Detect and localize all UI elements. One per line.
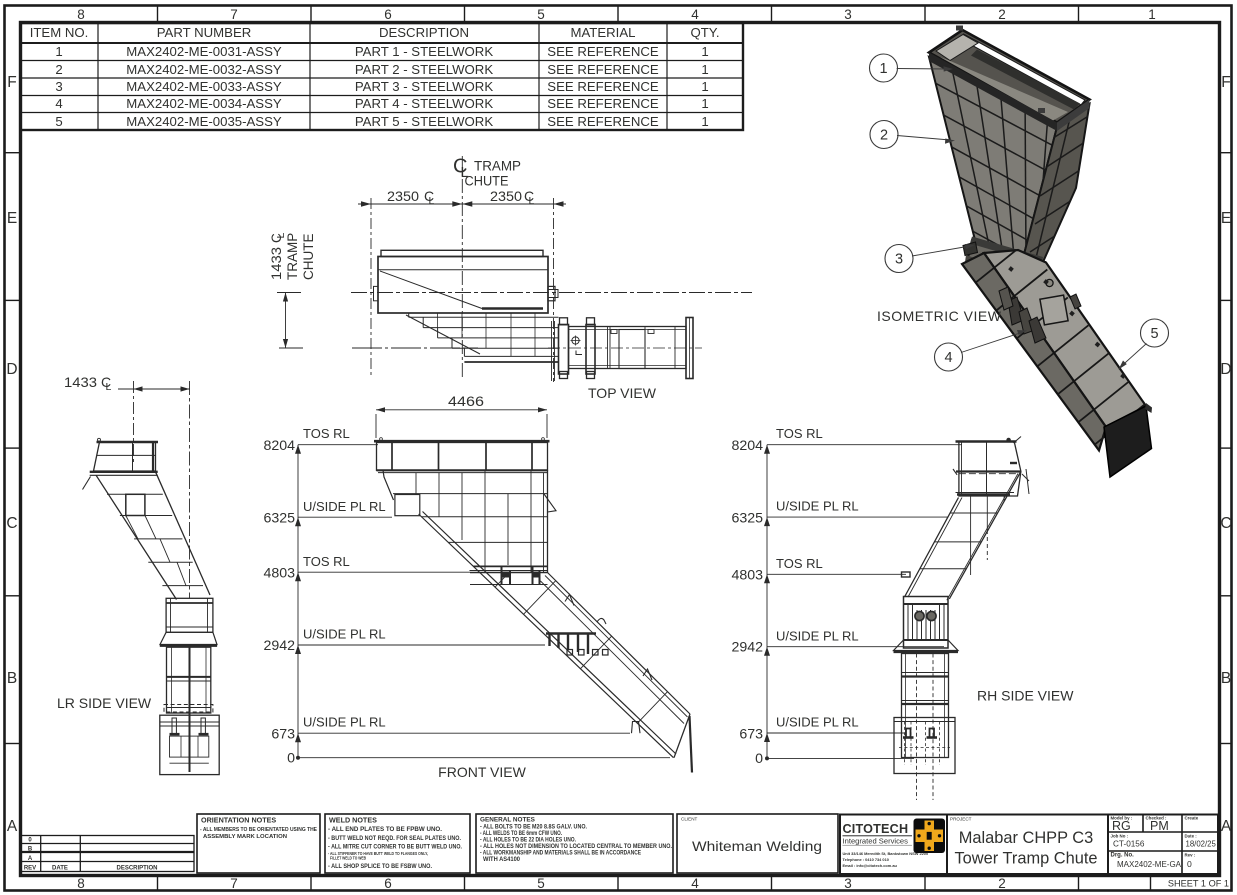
svg-text:TOS RL: TOS RL — [776, 426, 823, 441]
svg-text:1: 1 — [701, 79, 708, 94]
svg-text:MAX2402-ME-0032-ASSY: MAX2402-ME-0032-ASSY — [126, 62, 282, 77]
svg-text:2: 2 — [55, 62, 62, 77]
svg-text:SEE REFERENCE: SEE REFERENCE — [547, 44, 659, 59]
svg-text:1433: 1433 — [269, 247, 284, 280]
svg-text:0: 0 — [755, 751, 763, 767]
svg-text:TOS RL: TOS RL — [303, 426, 350, 441]
svg-text:U/SIDE PL RL: U/SIDE PL RL — [303, 715, 386, 730]
svg-text:B: B — [1221, 670, 1231, 687]
svg-text:6325: 6325 — [731, 511, 763, 527]
svg-text:0: 0 — [287, 751, 295, 767]
svg-text:Email : info@citotech.com.au: Email : info@citotech.com.au — [843, 863, 898, 868]
svg-text:Telephone : 0410 734 010: Telephone : 0410 734 010 — [843, 857, 889, 862]
svg-text:WITH AS4100: WITH AS4100 — [483, 857, 521, 863]
svg-text:3: 3 — [895, 252, 903, 268]
svg-text:7: 7 — [230, 7, 238, 22]
svg-text:MAX2402-ME-0033-ASSY: MAX2402-ME-0033-ASSY — [126, 79, 282, 94]
svg-text:L: L — [106, 381, 112, 393]
svg-text:RG: RG — [1112, 819, 1131, 833]
svg-text:- ALL WELDS TO BE 6mm CFW UNO.: - ALL WELDS TO BE 6mm CFW UNO. — [480, 831, 562, 837]
svg-text:TOS RL: TOS RL — [303, 554, 350, 569]
svg-text:U/SIDE PL RL: U/SIDE PL RL — [303, 627, 386, 642]
svg-text:C: C — [1220, 515, 1231, 532]
svg-text:5: 5 — [55, 114, 62, 129]
svg-text:SEE REFERENCE: SEE REFERENCE — [547, 114, 659, 129]
svg-text:1: 1 — [55, 44, 62, 59]
svg-text:- ALL BOLTS TO BE M20 8.8S GAL: - ALL BOLTS TO BE M20 8.8S GALV. UNO. — [480, 825, 587, 831]
svg-text:1: 1 — [1148, 7, 1156, 22]
svg-text:SEE REFERENCE: SEE REFERENCE — [547, 96, 659, 111]
svg-text:SEE REFERENCE: SEE REFERENCE — [547, 79, 659, 94]
svg-text:2: 2 — [998, 7, 1006, 22]
svg-text:PART NUMBER: PART NUMBER — [157, 25, 252, 40]
svg-text:Job No :: Job No : — [1111, 834, 1129, 839]
svg-text:- ALL WORKMANSHIP AND MATERIAL: - ALL WORKMANSHIP AND MATERIALS SHALL BE… — [480, 851, 641, 857]
svg-text:2350: 2350 — [387, 188, 419, 204]
svg-text:PART 3 - STEELWORK: PART 3 - STEELWORK — [355, 79, 493, 94]
svg-text:B: B — [7, 670, 17, 687]
svg-text:C: C — [6, 515, 17, 532]
svg-text:D: D — [6, 361, 17, 378]
svg-text:CHUTE: CHUTE — [465, 174, 509, 189]
svg-text:ITEM NO.: ITEM NO. — [30, 25, 89, 40]
svg-text:GENERAL NOTES: GENERAL NOTES — [480, 817, 536, 824]
svg-text:2: 2 — [998, 876, 1006, 891]
svg-text:8204: 8204 — [263, 438, 295, 454]
svg-text:1: 1 — [701, 114, 708, 129]
svg-text:2942: 2942 — [731, 640, 763, 656]
svg-text:8204: 8204 — [731, 438, 763, 454]
svg-text:18/02/25: 18/02/25 — [1186, 840, 1217, 849]
svg-text:- ALL MITRE CUT CORNER TO BE: - ALL MITRE CUT CORNER TO BE BUTT WELD U… — [328, 845, 462, 851]
svg-text:Malabar CHPP C3: Malabar CHPP C3 — [959, 829, 1094, 847]
svg-text:PART 2 - STEELWORK: PART 2 - STEELWORK — [355, 62, 493, 77]
svg-text:- ALL END PLATES TO BE FPBW UN: - ALL END PLATES TO BE FPBW UNO. — [328, 826, 442, 833]
svg-text:Integrated Services: Integrated Services — [843, 837, 909, 846]
svg-text:CT-0156: CT-0156 — [1113, 840, 1145, 849]
svg-text:8: 8 — [77, 876, 85, 891]
svg-text:D: D — [1220, 361, 1231, 378]
svg-text:WELD NOTES: WELD NOTES — [329, 816, 377, 825]
svg-text:TOS RL: TOS RL — [776, 556, 823, 571]
svg-text:PART 5 - STEELWORK: PART 5 - STEELWORK — [355, 114, 493, 129]
svg-text:2: 2 — [880, 128, 888, 144]
svg-text:PART 4 - STEELWORK: PART 4 - STEELWORK — [355, 96, 493, 111]
svg-text:ASSEMBLY MARK LOCATION: ASSEMBLY MARK LOCATION — [203, 834, 287, 840]
svg-text:1: 1 — [701, 44, 708, 59]
svg-text:1: 1 — [701, 96, 708, 111]
svg-text:3: 3 — [844, 7, 852, 22]
svg-text:MAX2402-ME-0035-ASSY: MAX2402-ME-0035-ASSY — [126, 114, 282, 129]
svg-text:DESCRIPTION: DESCRIPTION — [379, 25, 469, 40]
svg-text:3: 3 — [55, 79, 62, 94]
svg-text:L: L — [429, 195, 435, 207]
svg-text:CITOTECH: CITOTECH — [843, 822, 909, 836]
svg-text:U/SIDE PL RL: U/SIDE PL RL — [776, 499, 859, 514]
svg-text:Drg. No.: Drg. No. — [1111, 853, 1135, 859]
svg-text:CHUTE: CHUTE — [301, 234, 316, 281]
svg-text:5: 5 — [537, 7, 545, 22]
svg-text:CLIENT: CLIENT — [681, 817, 698, 822]
svg-text:L: L — [529, 195, 535, 207]
svg-text:673: 673 — [739, 727, 763, 743]
svg-text:- ALL HOLES TO BE 22 DIA HOLES: - ALL HOLES TO BE 22 DIA HOLES UNO. — [480, 838, 576, 844]
svg-text:1: 1 — [879, 61, 887, 77]
svg-text:3: 3 — [844, 876, 852, 891]
svg-text:U/SIDE PL RL: U/SIDE PL RL — [776, 629, 859, 644]
svg-text:7: 7 — [230, 876, 238, 891]
svg-text:- BUTT WELD NOT REQD. FOR SEAL: - BUTT WELD NOT REQD. FOR SEAL PLATES UN… — [328, 836, 461, 842]
svg-text:673: 673 — [271, 727, 295, 743]
svg-text:5: 5 — [1150, 326, 1158, 342]
svg-text:QTY.: QTY. — [690, 25, 719, 40]
svg-text:Tower Tramp Chute: Tower Tramp Chute — [954, 850, 1097, 868]
svg-text:RH SIDE VIEW: RH SIDE VIEW — [977, 688, 1074, 704]
svg-text:1: 1 — [701, 62, 708, 77]
svg-text:4466: 4466 — [448, 393, 484, 409]
svg-text:6: 6 — [384, 876, 392, 891]
svg-text:ISOMETRIC VIEW: ISOMETRIC VIEW — [877, 308, 1002, 324]
svg-text:MATERIAL: MATERIAL — [571, 25, 636, 40]
svg-text:E: E — [7, 210, 17, 227]
svg-text:2942: 2942 — [263, 638, 295, 654]
svg-text:8: 8 — [77, 7, 85, 22]
svg-text:4: 4 — [944, 350, 952, 366]
svg-text:4: 4 — [55, 96, 62, 111]
svg-text:2350: 2350 — [490, 188, 522, 204]
svg-text:U/SIDE PL RL: U/SIDE PL RL — [303, 499, 386, 514]
svg-text:F: F — [1221, 74, 1230, 91]
svg-text:- ALL MEMBERS TO BE ORIENTATED: - ALL MEMBERS TO BE ORIENTATED USING THE — [200, 827, 317, 833]
svg-text:TRAMP: TRAMP — [285, 233, 300, 280]
svg-text:5: 5 — [537, 876, 545, 891]
svg-text:TOP VIEW: TOP VIEW — [588, 385, 657, 401]
svg-text:4: 4 — [691, 7, 699, 22]
svg-text:FILLET WELD TO WEB: FILLET WELD TO WEB — [330, 856, 366, 861]
svg-text:FRONT VIEW: FRONT VIEW — [438, 764, 526, 780]
svg-text:MAX2402-ME-0034-ASSY: MAX2402-ME-0034-ASSY — [126, 96, 282, 111]
svg-text:LR SIDE VIEW: LR SIDE VIEW — [57, 695, 152, 711]
svg-text:Create: Create — [1185, 816, 1199, 821]
svg-text:SHEET 1 OF 1: SHEET 1 OF 1 — [1168, 879, 1229, 889]
svg-text:REV: REV — [24, 866, 36, 872]
svg-text:ORIENTATION NOTES: ORIENTATION NOTES — [201, 816, 276, 825]
svg-text:PM: PM — [1150, 819, 1169, 833]
svg-text:A: A — [7, 818, 18, 835]
svg-text:F: F — [7, 74, 16, 91]
svg-text:6: 6 — [384, 7, 392, 22]
svg-text:TRAMP: TRAMP — [474, 159, 521, 174]
svg-text:MAX2402-ME-0031-ASSY: MAX2402-ME-0031-ASSY — [126, 44, 282, 59]
svg-text:PART 1 - STEELWORK: PART 1 - STEELWORK — [355, 44, 493, 59]
svg-text:6325: 6325 — [263, 511, 295, 527]
svg-text:U/SIDE PL RL: U/SIDE PL RL — [776, 715, 859, 730]
svg-text:E: E — [1221, 210, 1231, 227]
svg-text:Date :: Date : — [1185, 834, 1198, 839]
svg-text:SEE REFERENCE: SEE REFERENCE — [547, 62, 659, 77]
svg-text:B: B — [28, 847, 33, 853]
svg-text:MAX2402-ME-GA: MAX2402-ME-GA — [1117, 860, 1182, 869]
svg-text:4803: 4803 — [731, 568, 763, 584]
svg-text:4: 4 — [691, 876, 699, 891]
svg-text:0: 0 — [1187, 859, 1192, 869]
svg-text:DESCRIPTION: DESCRIPTION — [116, 866, 157, 872]
svg-text:A: A — [28, 856, 33, 862]
svg-text:A: A — [1221, 818, 1232, 835]
svg-text:Whiteman Welding: Whiteman Welding — [692, 839, 822, 854]
svg-text:PROJECT: PROJECT — [950, 817, 972, 822]
svg-text:Rev :: Rev : — [1185, 853, 1196, 858]
svg-text:- ALL HOLES NOT DIMENSION TO L: - ALL HOLES NOT DIMENSION TO LOCATED CEN… — [480, 844, 672, 850]
svg-text:4803: 4803 — [263, 566, 295, 582]
svg-text:- ALL SHOP SPLICE TO BE FSBW: - ALL SHOP SPLICE TO BE FSBW UNO. — [328, 864, 432, 870]
svg-text:1433: 1433 — [64, 374, 97, 390]
svg-text:DATE: DATE — [52, 866, 68, 872]
